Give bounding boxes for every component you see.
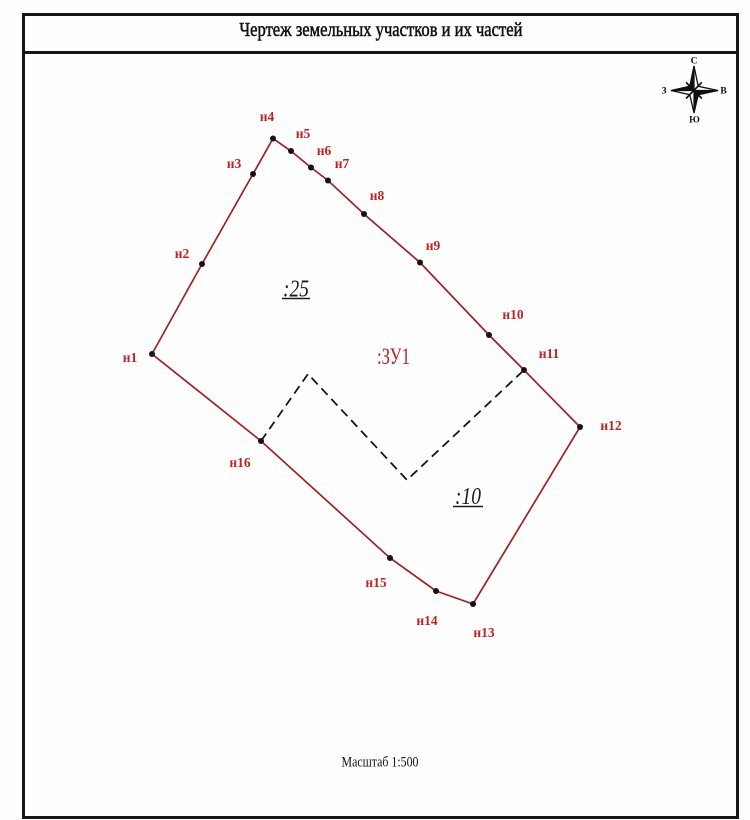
svg-text:н12: н12 <box>600 418 622 433</box>
svg-text:н11: н11 <box>539 346 560 361</box>
svg-text:н4: н4 <box>260 109 275 124</box>
svg-text:н6: н6 <box>317 143 332 158</box>
svg-text:н1: н1 <box>123 350 138 365</box>
svg-text:н13: н13 <box>473 625 495 640</box>
svg-text:н10: н10 <box>502 307 524 322</box>
svg-text:В: В <box>720 87 727 97</box>
svg-text:Масштаб 1:500: Масштаб 1:500 <box>342 755 419 771</box>
svg-text:н15: н15 <box>365 575 387 590</box>
svg-text:н14: н14 <box>416 613 438 628</box>
svg-text:н16: н16 <box>229 455 251 470</box>
svg-text:З: З <box>661 87 666 97</box>
svg-text::ЗУ1: :ЗУ1 <box>377 344 410 369</box>
svg-text:н3: н3 <box>227 156 242 171</box>
svg-text:н5: н5 <box>296 126 311 141</box>
svg-text:Ю: Ю <box>689 116 700 126</box>
svg-text:н8: н8 <box>370 188 385 203</box>
svg-text:н9: н9 <box>426 238 441 253</box>
svg-text:н2: н2 <box>175 246 190 261</box>
svg-text:С: С <box>691 57 698 67</box>
svg-text:н7: н7 <box>335 156 350 171</box>
